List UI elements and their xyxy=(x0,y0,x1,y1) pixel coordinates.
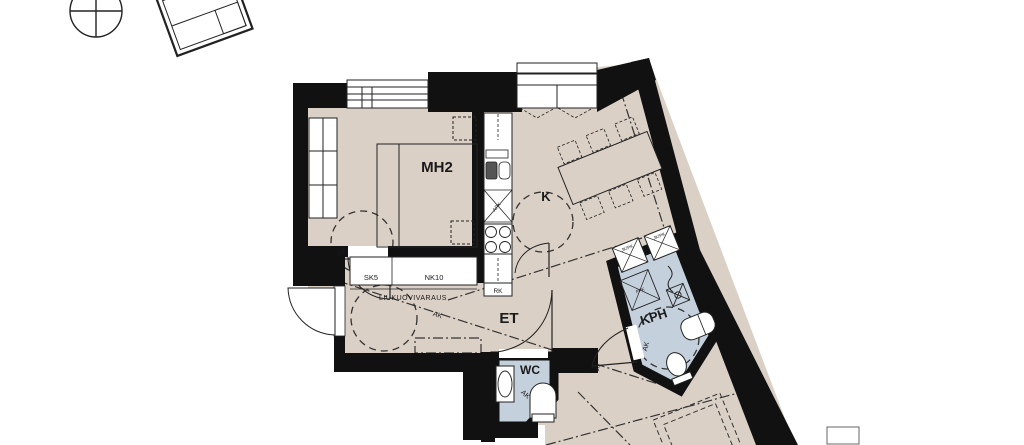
kitchen-counter: APK xyxy=(484,113,512,283)
mh2-window xyxy=(347,80,428,108)
floor-plan-drawing: APK RK SK5 NK10 LIUKUOVIVARAUS xyxy=(0,0,1024,445)
room-label-wc: WC xyxy=(520,363,540,377)
mh2-wardrobe xyxy=(309,118,337,218)
room-label-mh2: MH2 xyxy=(421,159,453,176)
rk-label: RK xyxy=(493,288,503,295)
electrical-panel: RK xyxy=(484,283,512,296)
room-label-k: K xyxy=(541,189,551,204)
sliding-door-note: LIUKUOVIVARAUS xyxy=(379,295,447,302)
compass-icon xyxy=(70,0,122,37)
key-plan xyxy=(156,0,252,56)
closet-nk10-label: NK10 xyxy=(425,273,444,282)
wc-basin xyxy=(496,366,514,402)
neighbor-detail xyxy=(827,427,859,444)
room-label-et: ET xyxy=(499,310,518,327)
floor-plan-page: APK RK SK5 NK10 LIUKUOVIVARAUS xyxy=(0,0,1024,445)
closet-sk5-label: SK5 xyxy=(364,273,378,282)
wc-toilet xyxy=(530,383,556,422)
entrance-door xyxy=(288,286,345,336)
